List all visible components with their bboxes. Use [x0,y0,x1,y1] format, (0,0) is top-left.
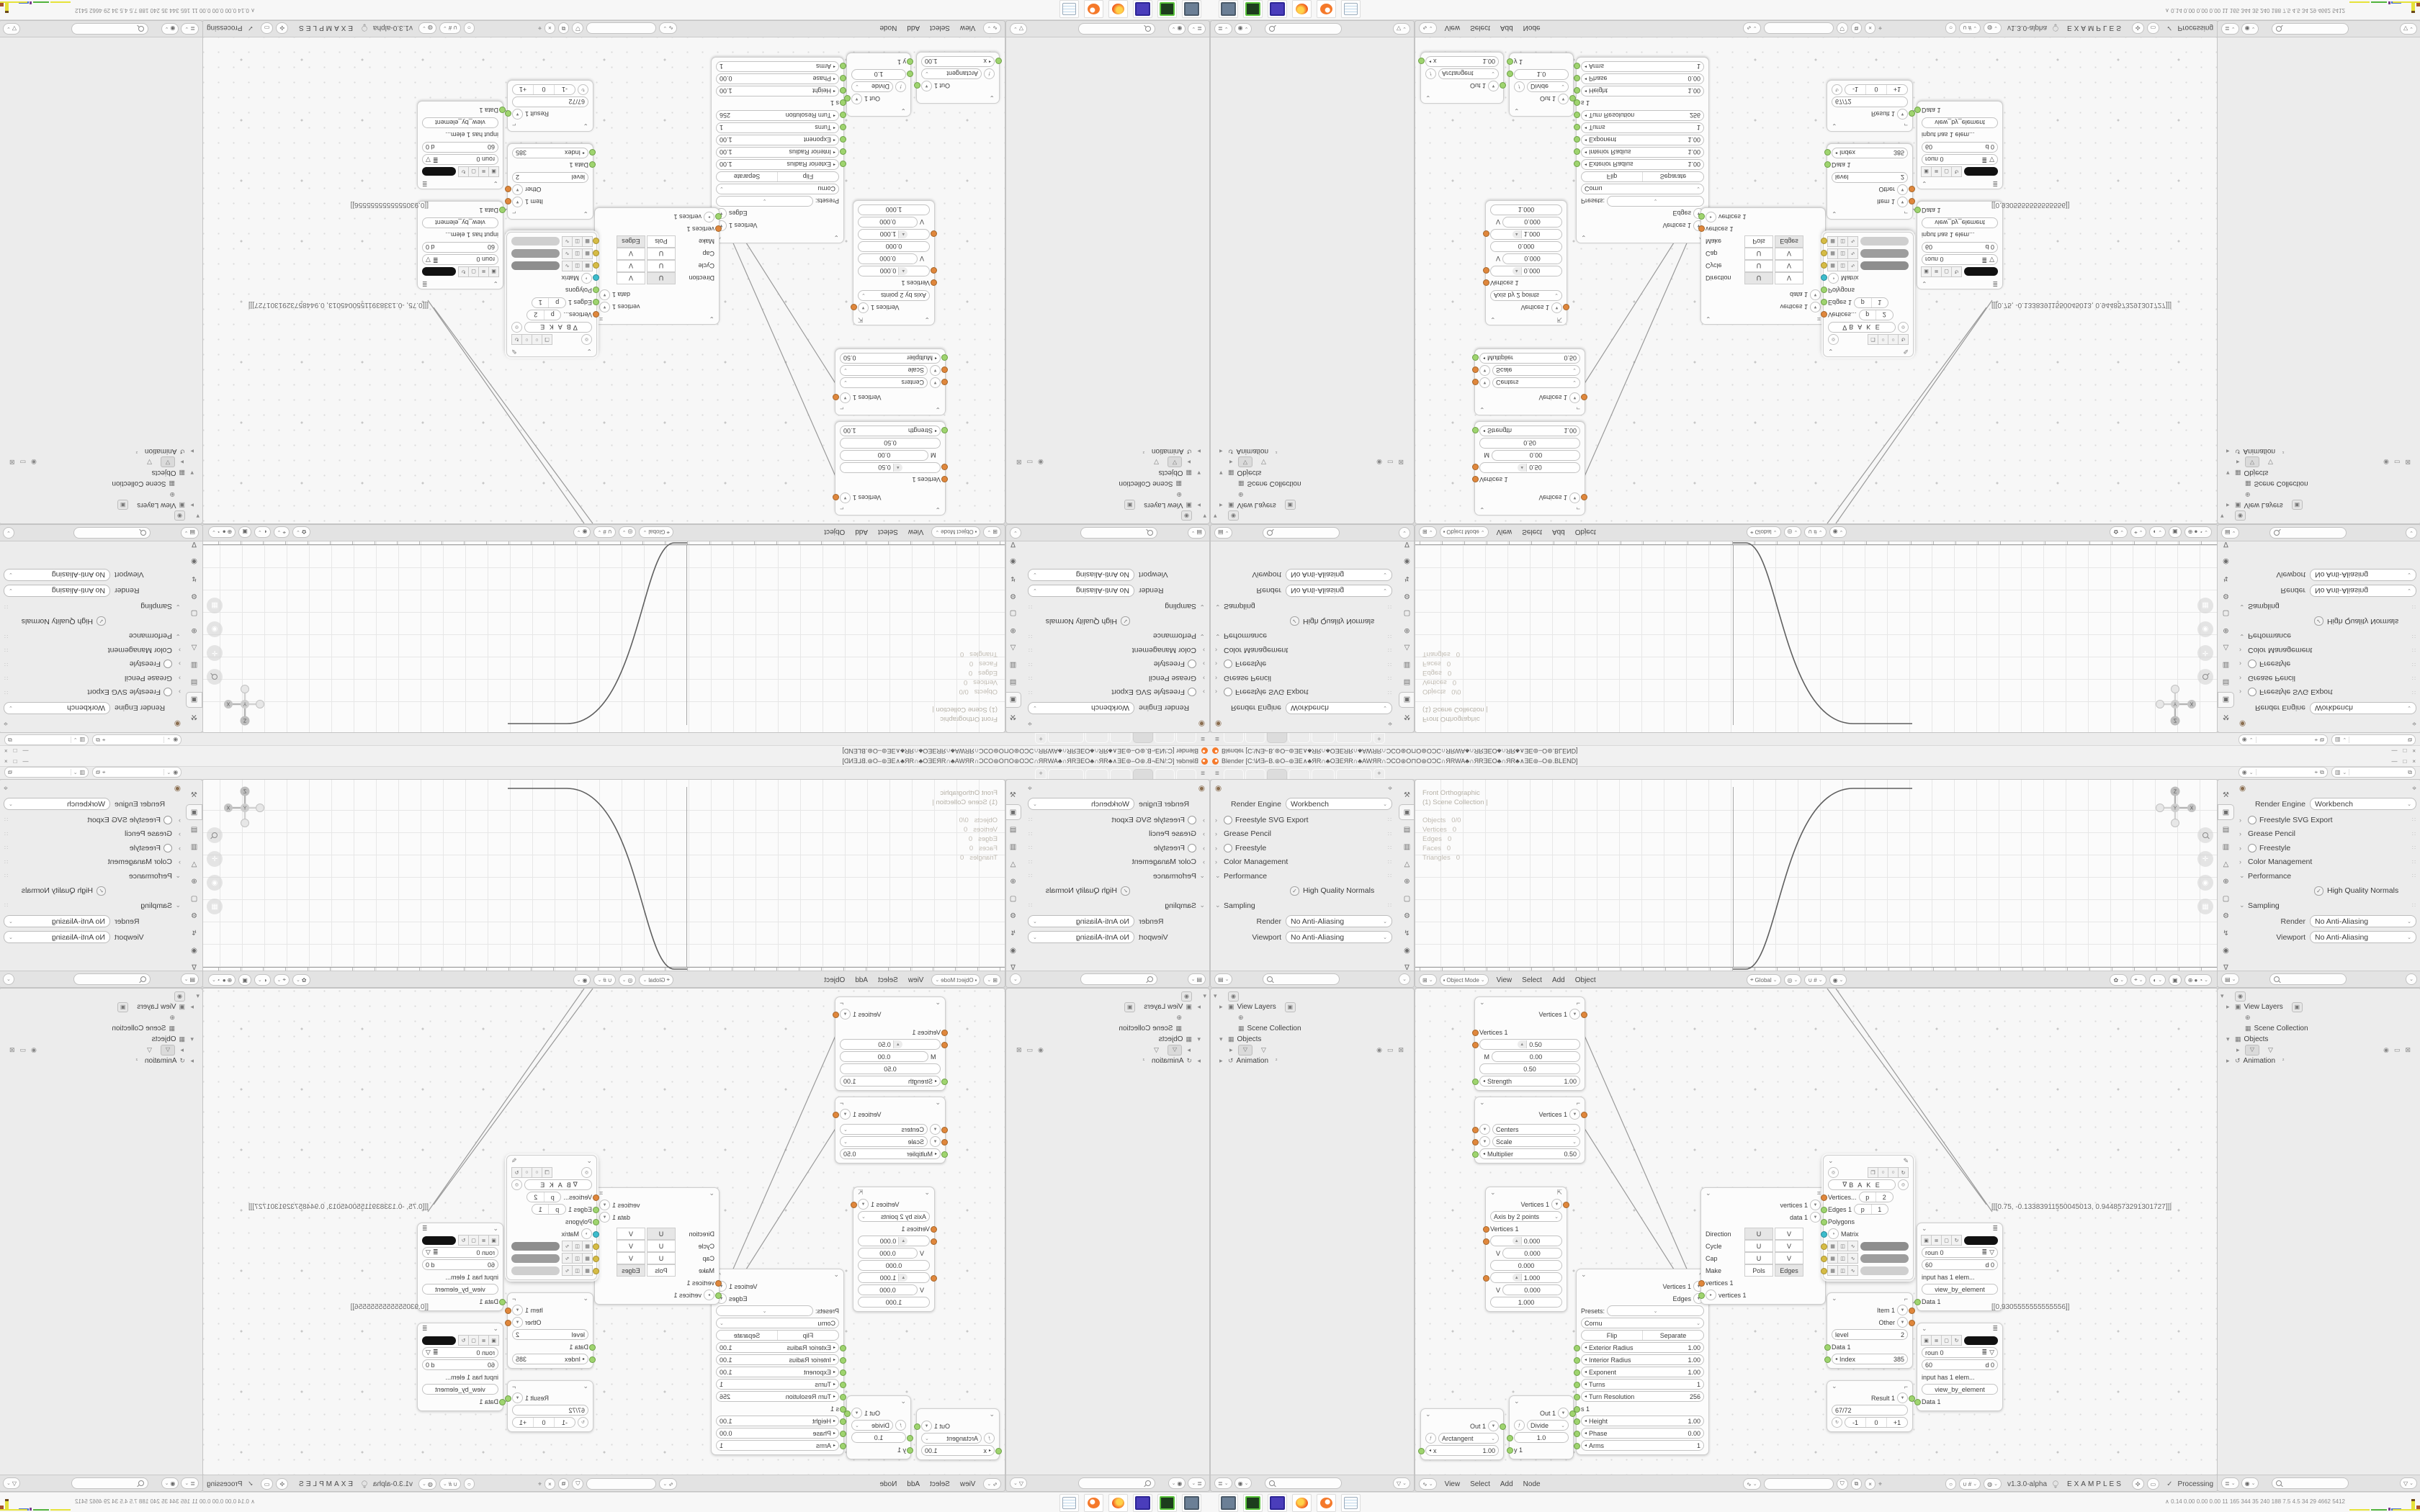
radio-icon[interactable] [1224,816,1232,824]
prop-section[interactable]: ⌄Sampling∷ [1028,603,1205,611]
menu-view[interactable]: View [1497,528,1512,536]
socket-o[interactable] [1483,1275,1489,1282]
socket-g[interactable] [840,87,846,94]
workspace-tab-1[interactable] [1176,769,1196,779]
prop-enum-dropdown[interactable]: No Anti-Aliasing⌄ [2310,915,2416,927]
socket-g[interactable] [840,124,846,130]
collapse-icon[interactable]: ⌄ [900,107,906,114]
socket-c[interactable] [593,1231,599,1238]
toggle-mini[interactable]: ▸ [704,212,714,222]
fake-user-button[interactable]: ⛉ [1837,1478,1848,1490]
collapse-icon[interactable]: ⌄ [493,279,498,287]
taskbar-floppy64-icon[interactable] [1268,1494,1287,1512]
orientation-dropdown[interactable]: ⌖ Global⌄ [639,974,673,986]
properties-tab-world[interactable]: ⊕ [1399,623,1415,639]
socket-g[interactable] [589,161,596,168]
dropdown-mini[interactable]: ▼ [1558,94,1569,104]
menu-view[interactable]: View [908,976,924,984]
node-header[interactable]: ⌄≣ [422,1323,498,1334]
slider-left-arrow[interactable]: ◂ [1835,1356,1837,1362]
restrict-icon-1[interactable]: ▭ [20,1046,27,1054]
table-cell[interactable]: V [617,1228,645,1240]
collapse-icon[interactable]: ⌄ [709,1189,714,1197]
prop-enum-dropdown[interactable]: No Anti-Aliasing⌄ [1286,931,1392,943]
grid-toggle-icon[interactable]: ▦ [207,899,223,914]
table-cell[interactable]: Pols [647,1264,676,1277]
stetho-icon-2[interactable]: ▢ [468,1235,479,1246]
restrict-icon-1[interactable]: ▭ [1387,1046,1394,1054]
funnel-icon[interactable]: ▽ [1989,256,1994,264]
workspace-tab-4[interactable] [1289,769,1310,779]
seg-item[interactable]: +1 [1886,85,1907,94]
mode-icon-0[interactable]: ❒ [1868,334,1878,345]
show-overlays-button[interactable]: ⌖⌄ [274,974,290,986]
prop-checkbox-row[interactable]: ✓High Quality Normals [4,617,106,626]
node-header[interactable]: ⌄ [851,1396,906,1407]
lifebuoy-icon[interactable]: ◎ [511,322,522,333]
properties-tab-physics[interactable]: ↯ [186,925,202,941]
display-mode-button[interactable]: ≣⌄ [1188,23,1206,35]
workspace-tab-2[interactable] [1245,733,1265,743]
prop-section[interactable]: ⌄Performance∷ [4,632,181,641]
maximize-button[interactable]: □ [2403,748,2406,755]
add-workspace-tab-button[interactable]: + [1373,768,1385,779]
collapse-icon[interactable]: ⌄ [1828,1157,1834,1165]
properties-tab-view-layer[interactable]: ▥ [1005,657,1021,673]
stepper-up-icon[interactable]: ▲ [1518,464,1527,472]
minimize-button[interactable]: — [23,748,29,755]
properties-tab-object[interactable]: ▢ [2218,606,2234,621]
socket-g[interactable] [1821,287,1827,293]
node-header[interactable]: ⌄ [1514,105,1569,116]
mode-icon-3[interactable]: ↻ [1898,334,1909,345]
socket-g[interactable] [907,71,913,77]
socket-g[interactable] [941,1151,948,1158]
seg-item[interactable]: Flip [778,1331,838,1340]
camera-view-icon[interactable]: ◉ [2197,621,2213,637]
table-cell[interactable]: V [617,1240,645,1252]
dd-lead-icon[interactable]: ▼ [1479,377,1490,388]
workspace-tab-4[interactable] [1289,733,1310,743]
socket-g[interactable] [1824,1356,1831,1363]
list-index-node[interactable]: ⌄⌐Result 1▼67/72↻-10+1 [507,80,593,132]
socket-o[interactable] [1581,1112,1587,1118]
properties-tab-constraints[interactable]: ◉ [186,942,202,958]
seg-item[interactable]: Separate [1642,172,1703,181]
stethoscope-node-a[interactable]: ⌄≣▣≣▢↻roun 0≣▽60d 0input has 1 elem...vi… [417,201,503,289]
table-cell[interactable]: V [1775,248,1803,260]
filter-button[interactable]: ▽⌄ [1010,23,1027,35]
stepper-up-icon[interactable]: ▲ [898,1274,907,1282]
socket-g[interactable] [505,1395,511,1402]
stetho-icon-0[interactable]: ▣ [488,166,499,177]
render-preview-button[interactable]: ▣ [238,526,251,538]
properties-tab-world[interactable]: ⊕ [1005,623,1021,639]
node-header[interactable]: ⌄⌐ [1479,504,1580,515]
menu-select[interactable]: Select [1522,528,1542,536]
table-cell[interactable]: Edges [617,1264,645,1277]
prop-section[interactable]: ›Freestyle SVG Export∷ [1028,816,1205,824]
dropdown-mini[interactable]: ▼ [1897,109,1908,120]
socket-g[interactable] [1507,1447,1513,1454]
socket-o[interactable] [1909,186,1915,192]
outliner-row[interactable]: ▦Scene Collection [2220,1023,2418,1034]
processing-label[interactable]: Processing [2178,1480,2213,1488]
socket-g[interactable] [840,1382,846,1388]
options-button[interactable]: ⌄ [1010,973,1021,985]
menu-add[interactable]: Add [1552,528,1565,536]
taskbar-monitor-app-icon[interactable] [1182,1494,1201,1512]
outliner-row[interactable]: ⊕ [1009,489,1206,500]
socket-g[interactable] [1698,213,1705,220]
node-editor[interactable]: ⌄⌐Vertices 1▼Vertices 1▲0.50M0.000.50◂St… [202,988,1005,1492]
slider-left-arrow[interactable]: ◂ [1585,64,1587,69]
stethoscope-node-a[interactable]: ⌄≣▣≣▢↻roun 0≣▽60d 0input has 1 elem...vi… [417,1223,503,1311]
table-cell[interactable]: U [1744,1240,1773,1252]
properties-tab-world[interactable]: ⊕ [2218,623,2234,639]
copy-icon[interactable]: ⧉ [96,737,100,744]
split-a[interactable]: p [1855,1205,1871,1214]
node-header[interactable]: ⌄⌐ [840,997,941,1008]
stethoscope-node-b[interactable]: ⌄≣▣≣▢↻roun 0≣▽60d 0input has 1 elem...vi… [1917,101,2003,189]
properties-tab-world[interactable]: ⊕ [1005,873,1021,889]
prop-section[interactable]: ⌄Performance∷ [4,872,181,881]
menu-select[interactable]: Select [1470,1480,1490,1488]
collapse-icon[interactable]: ⌄ [1479,405,1485,413]
table-cell[interactable]: U [647,1228,676,1240]
socket-o[interactable] [1821,311,1827,318]
menu-icon[interactable]: ≡ [1215,770,1219,778]
dd-lead-icon[interactable]: ▼ [1479,365,1490,376]
socket-o[interactable] [941,476,948,482]
stetho-icon-0[interactable]: ▣ [1921,1235,1932,1246]
value-bar[interactable] [511,1266,560,1275]
socket-o[interactable] [505,186,511,192]
outliner-row[interactable]: ▦Scene Collection [1009,1023,1206,1034]
outliner-row[interactable]: ▾▦Objects [1214,1034,1411,1045]
list-icon[interactable]: ≣ [433,1248,439,1256]
properties-tab-world[interactable]: ⊕ [2218,873,2234,889]
display-mode-button[interactable]: ≣⌄ [1188,1477,1206,1489]
segmented-control[interactable]: -10+1 [1845,84,1908,95]
dropdown-mini[interactable]: ▼ [1551,302,1562,313]
properties-tab-physics[interactable]: ↯ [1005,925,1021,941]
tree-type-button[interactable]: ∿⌄ [1743,22,1761,34]
taskbar-firefox-icon[interactable] [1108,1494,1128,1512]
outliner-row[interactable]: ⊕ [1214,1012,1411,1023]
socket-o[interactable] [715,1280,722,1287]
seg-item[interactable]: 0 [1865,1418,1886,1427]
table-cell[interactable]: V [617,248,645,260]
editor-type-button[interactable]: ▤⌄ [1188,973,1206,985]
table-cell[interactable]: Pols [647,235,676,248]
dropdown-mini[interactable]: ▼ [1897,184,1908,195]
pan-hand-icon[interactable]: ✛ [2197,645,2213,661]
display-mode-button[interactable]: ≣⌄ [181,23,199,35]
slider-left-arrow[interactable]: ◂ [1585,150,1587,155]
socket-g[interactable] [1569,95,1576,102]
socket-o[interactable] [593,1194,599,1201]
properties-tab-scene[interactable]: △ [1399,640,1415,656]
socket-y[interactable] [593,250,599,256]
socket-g[interactable] [941,427,948,433]
stetho-icon-0[interactable]: ▣ [1921,1335,1932,1346]
tree-type-button[interactable]: ∿⌄ [659,1478,677,1490]
editor-type-button[interactable]: ▤⌄ [2221,527,2239,539]
socket-o[interactable] [851,1202,857,1208]
outliner-id-button[interactable]: ◉⌄ [161,1477,179,1489]
menu-add[interactable]: Add [1552,976,1565,984]
socket-y[interactable] [1821,250,1827,256]
collapse-icon[interactable]: ⌄ [583,1382,588,1390]
socket-o[interactable] [1472,1139,1479,1146]
pin-icon[interactable]: ⌖ [538,24,542,32]
text-color-swatch[interactable] [422,268,456,276]
dd-lead-icon[interactable]: ▼ [1479,1124,1490,1135]
fake-user-button[interactable]: ⛉ [572,1478,583,1490]
prop-section[interactable]: ›Grease Pencil∷ [4,829,181,838]
radio-icon[interactable] [1188,688,1196,697]
properties-tab-scene[interactable]: △ [2218,856,2234,872]
socket-o[interactable] [1698,1280,1705,1287]
toggle-mini[interactable]: ◑ [1828,1228,1839,1239]
viewer-bake-node[interactable]: ⌄✎◎❒○○↻∇B A K E◎Vertices...p2Edges 1p1Po… [506,232,597,357]
workspace-tab-4[interactable] [1110,733,1131,743]
outliner-item-badge[interactable]: ▣ [117,1002,128,1012]
xray-toggle-button[interactable]: ◐⌄ [254,974,271,986]
dd-lead-icon[interactable]: ƒ [895,1420,906,1431]
copy-datablock-button[interactable]: ⧉ [558,1478,570,1490]
show-gizmo-button[interactable]: ✿⌄ [2110,974,2128,986]
dropdown-mini[interactable]: ▼ [1897,1317,1908,1328]
properties-tab-tool[interactable]: ⚒ [186,787,202,803]
prop-section[interactable]: ›Color Management∷ [1028,858,1205,866]
slider-left-arrow[interactable]: ◂ [1585,1431,1587,1436]
seg-item[interactable]: -1 [1845,1418,1865,1427]
properties-tab-tool[interactable]: ⚒ [1005,709,1021,725]
slider-left-arrow[interactable]: ◂ [1585,113,1587,118]
orientation-dropdown[interactable]: ⌖ Global⌄ [1747,526,1781,538]
outliner-row[interactable]: ▸▽▽◉▭⊠ [1214,1045,1411,1056]
tree-type-button[interactable]: ∿⌄ [659,22,677,34]
taskbar-floppy64-icon[interactable] [1133,0,1152,18]
socket-g[interactable] [1574,1431,1580,1437]
list-icon[interactable]: ≣ [1982,1349,1988,1356]
workspace-tab-1[interactable] [1176,733,1196,743]
node-tree-name-field[interactable] [1764,22,1834,34]
menu-view[interactable]: View [960,1480,976,1488]
prop-enum-dropdown[interactable]: No Anti-Aliasing⌄ [1286,915,1392,927]
math-arctangent-node[interactable]: ⌄Out 1▼ƒArctangent⌄◂x1.00 [1420,52,1504,104]
restrict-icon-1[interactable]: ▭ [1027,458,1034,466]
orientation-dropdown[interactable]: ⌖ Global⌄ [639,526,673,538]
socket-c[interactable] [1821,1231,1827,1238]
restrict-icon-1[interactable]: ▭ [2394,1046,2401,1054]
menu-object[interactable]: Object [1575,976,1596,984]
pin-icon[interactable]: ⌖ [1028,784,1032,793]
node-header[interactable]: ⌄✎ [511,1156,592,1166]
socket-g[interactable] [840,75,846,81]
stepper-up-icon[interactable]: ▲ [898,230,907,238]
pin-icon[interactable]: ⌖ [1028,719,1032,729]
properties-tab-object[interactable]: ▢ [1399,891,1415,906]
table-cell[interactable]: U [1744,248,1773,260]
socket-g[interactable] [499,107,506,113]
window-titlebar[interactable]: Blender [C:\ИƎ⌐B.⊛O–⊚ƎE∧♣ЯR∩♣OƎEЯR∩♣AWЯR… [0,745,1210,756]
socket-g[interactable] [907,1435,913,1441]
overlay-toggle-button[interactable]: ◍⌄ [418,1478,436,1490]
dropdown-mini[interactable]: ▼ [1488,1421,1499,1431]
snap-target-button[interactable]: ◎⌄ [1784,974,1802,986]
processing-label[interactable]: Processing [207,24,242,32]
copy-icon[interactable]: ⧉ [8,769,12,776]
bar-icon-2[interactable]: ∿ [1847,236,1858,247]
socket-o[interactable] [505,1308,511,1314]
proportional-edit-button[interactable]: ◉⌄ [1829,526,1847,538]
value-bar[interactable] [1860,262,1909,271]
snap-node-button[interactable]: ∪#⌄ [1959,1478,1981,1490]
outliner-search-input[interactable] [1265,23,1342,35]
outliner-row[interactable]: ▦Scene Collection [2,478,200,489]
table-cell[interactable]: U [1744,1252,1773,1264]
outliner-search-input[interactable] [1078,23,1155,35]
socket-g[interactable] [840,1357,846,1364]
outliner-search-input[interactable] [1078,1477,1155,1489]
properties-tab-view-layer[interactable]: ▥ [2218,657,2234,673]
radio-icon[interactable] [2248,844,2257,852]
dropdown-mini[interactable]: ▼ [1897,197,1908,207]
socket-o[interactable] [941,1042,948,1048]
socket-g[interactable] [1500,1423,1506,1430]
socket-o[interactable] [1563,304,1569,310]
socket-y[interactable] [1821,1268,1827,1274]
socket-o[interactable] [1483,1238,1489,1245]
socket-o[interactable] [1483,1226,1489,1233]
split-pill[interactable]: p1 [532,297,566,308]
stetho-icon-3[interactable]: ↻ [458,266,469,277]
split-pill[interactable]: p2 [1859,1192,1894,1202]
close-button[interactable]: × [4,758,8,765]
dropdown-mini[interactable]: ▼ [599,289,610,300]
outliner-row[interactable]: ▾▦Objects [2,467,200,478]
table-cell[interactable]: V [617,260,645,272]
properties-tab-constraints[interactable]: ◉ [1399,554,1415,570]
socket-o[interactable] [1909,1308,1915,1314]
noise-vertices-node[interactable]: ⌄⌐Vertices 1▼Vertices 1▲0.50M0.000.50◂St… [1474,996,1585,1091]
prop-section[interactable]: ›Freestyle SVG Export∷ [1215,816,1392,824]
prop-section[interactable]: ›Color Management∷ [2239,646,2416,654]
bar-icon-1[interactable]: ◫ [572,1241,583,1251]
socket-y[interactable] [593,238,599,244]
camera-view-icon[interactable]: ◉ [207,875,223,891]
target-icon[interactable]: ◎ [581,1167,592,1178]
outliner-row[interactable]: ▸▣View Layers▣ [1214,500,1411,510]
properties-tab-world[interactable]: ⊕ [186,623,202,639]
dropdown-mini[interactable]: ▼ [512,197,523,207]
slider-left-arrow[interactable]: ◂ [1585,125,1587,130]
search-input[interactable] [2269,527,2347,539]
socket-g[interactable] [1824,1344,1831,1351]
value-bar[interactable] [1860,238,1909,246]
table-cell[interactable]: Edges [1775,235,1803,248]
list-icon[interactable]: ≣ [433,1349,439,1356]
camera-view-icon[interactable]: ◉ [2197,875,2213,891]
bar-icon-2[interactable]: ∿ [1847,248,1858,259]
split-pill[interactable]: p1 [1854,1204,1888,1215]
prop-checkbox-row[interactable]: ✓High Quality Normals [1028,886,1130,896]
workspace-tab-5[interactable] [1085,733,1108,743]
snap-magnet-button[interactable]: ∪#⌄ [593,526,615,538]
slider-left-arrow[interactable]: ◂ [1585,1369,1587,1374]
table-cell[interactable]: V [617,1252,645,1264]
restrict-icon-1[interactable]: ▭ [1387,458,1394,466]
stetho-icon-0[interactable]: ▣ [488,266,499,277]
dropdown-mini[interactable]: ▼ [1569,392,1580,403]
pin-icon[interactable]: ⌖ [1878,24,1882,32]
outliner-row[interactable]: ⊕ [1009,1012,1206,1023]
search-input[interactable] [73,973,151,985]
socket-g[interactable] [1574,1357,1580,1364]
pin-icon[interactable]: ⌖ [102,769,106,776]
stetho-icon-2[interactable]: ▢ [1941,1335,1952,1346]
socket-o[interactable] [1698,225,1705,232]
properties-tab-modifiers[interactable]: ⚙ [1399,908,1415,924]
seg-item[interactable]: +1 [513,1418,534,1427]
properties-tab-physics[interactable]: ↯ [2218,571,2234,587]
editor-type-button[interactable]: ▤⌄ [181,973,199,985]
seg-item[interactable]: 0 [1865,85,1886,94]
node-header[interactable]: ⌄⌐ [840,504,941,515]
bar-icon-2[interactable]: ∿ [562,236,573,247]
grid-toggle-icon[interactable]: ▦ [2197,598,2213,613]
overlay-toggle-button[interactable]: ◍⌄ [418,22,436,34]
restrict-icon-2[interactable]: ⊠ [1016,458,1022,466]
list-icon[interactable]: ≣ [433,256,439,264]
menu-select[interactable]: Select [878,528,898,536]
unlink-button[interactable]: × [1865,1478,1875,1490]
toggle-mini[interactable]: ▸ [1706,1290,1716,1300]
camera-view-icon[interactable]: ◉ [207,621,223,637]
snap-node-button[interactable]: ∪#⌄ [439,22,461,34]
prop-section[interactable]: ›Color Management∷ [2239,858,2416,866]
copy-icon[interactable]: ⧉ [96,769,100,776]
list-item-node[interactable]: ⌄⌐Item 1▼Other▼level2Data 1◂Index385 [507,143,593,220]
socket-g[interactable] [1500,82,1506,89]
dd-lead-icon[interactable]: ƒ [1425,1433,1436,1444]
draft-mode-button[interactable]: ▭ [2147,1478,2160,1490]
table-cell[interactable]: Pols [1744,235,1773,248]
node-header[interactable]: ⌄ [1425,92,1499,103]
split-b[interactable]: 2 [527,310,544,320]
socket-g[interactable] [1472,427,1479,433]
slider-left-arrow[interactable]: ◂ [583,1356,585,1362]
outliner-row[interactable]: ▦Scene Collection [1214,1023,1411,1034]
prop-section[interactable]: ›Freestyle∷ [1215,660,1392,669]
seg-item[interactable]: +1 [513,85,534,94]
stethoscope-node-a[interactable]: ⌄≣▣≣▢↻roun 0≣▽60d 0input has 1 elem...vi… [1917,1223,2003,1311]
prop-section[interactable]: ⌄Performance∷ [1215,872,1392,881]
processing-label[interactable]: Processing [2178,24,2213,32]
close-button[interactable]: × [4,748,8,755]
bar-icon-0[interactable]: ▦ [582,1241,593,1251]
restrict-icon-2[interactable]: ⊠ [2405,458,2411,466]
stetho-icon-0[interactable]: ▣ [488,1335,499,1346]
slider-left-arrow[interactable]: ◂ [833,64,835,69]
bar-icon-2[interactable]: ∿ [1847,1265,1858,1276]
prop-section[interactable]: ›Freestyle∷ [2239,844,2416,852]
table-cell[interactable]: V [1775,1228,1803,1240]
dropdown-mini[interactable]: ▼ [1488,81,1499,91]
